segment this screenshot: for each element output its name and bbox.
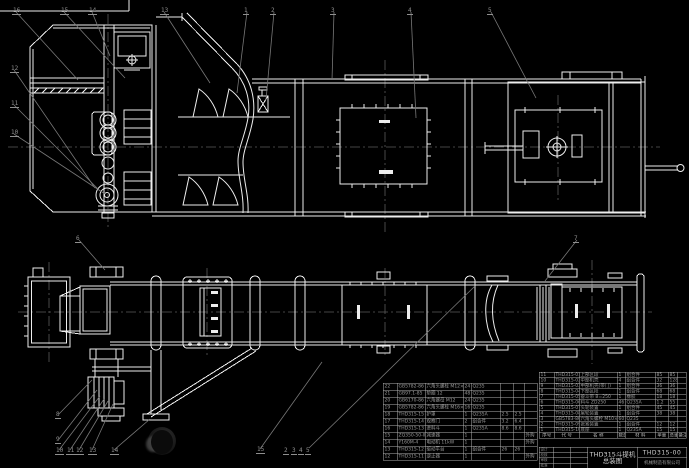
bom-cell: 60 — [617, 416, 625, 422]
bom-cell — [513, 439, 524, 446]
bom-cell: THD315-08 — [554, 411, 579, 417]
bom-cell — [524, 425, 537, 432]
bom-cell: THD315-03 — [554, 383, 579, 389]
bom-cell: 1 — [463, 432, 471, 439]
bom-header-cell: 数量 — [617, 433, 625, 439]
bom-cell: 逆止器 — [425, 453, 463, 460]
bom-cell — [524, 390, 537, 397]
company-name: 机械制造有限公司 — [638, 458, 687, 468]
bom-cell: 垫圈 12 — [425, 390, 463, 397]
callout-balloon: 4 — [407, 8, 413, 15]
callout-balloon: 8 — [55, 412, 61, 419]
callout-balloon: 11 — [66, 448, 75, 455]
bom-cell — [500, 432, 513, 439]
bom-cell: GB5782-86 — [397, 404, 425, 411]
bom-cell: 26 — [500, 446, 513, 453]
bom-cell: Q235 — [471, 383, 500, 390]
callout-balloon: 15 — [60, 8, 69, 15]
drawing-code-cell: THD315-00 机械制造有限公司 — [638, 448, 687, 468]
bom-cell: 组合件 — [471, 446, 500, 453]
revision-cell — [571, 453, 588, 458]
bom-cell: 驱动平台 — [425, 446, 463, 453]
bom-cell: 8.6 — [513, 425, 524, 432]
callout-balloon: 3 — [330, 8, 336, 15]
bom-cell — [500, 390, 513, 397]
bom-header-cell: 材 料 — [625, 433, 655, 439]
bom-cell: Q235 — [471, 404, 500, 411]
bom-cell: GB97.1-85 — [397, 390, 425, 397]
bom-row: 17THD315-14观察门2组合件3.26.4 — [383, 418, 537, 425]
bom-cell: GB6170-86 — [397, 397, 425, 404]
bom-cell — [524, 397, 537, 404]
callout-balloon: 12 — [75, 448, 84, 455]
callout-balloon: 6 — [75, 236, 81, 243]
bom-row: 20GB6170-86六角螺母 M1224Q235 — [383, 397, 537, 404]
bom-row: 22GB5782-86六角头螺栓 M12×4024Q235 — [383, 383, 537, 390]
bom-cell: THD315-15 — [397, 411, 425, 418]
bom-cell: 8.6 — [500, 425, 513, 432]
revision-cell — [554, 463, 571, 468]
bom-row: 13THD315-12驱动平台1组合件2626 — [383, 446, 537, 453]
callout-balloon: 5 — [487, 8, 493, 15]
callout-balloon: 15 — [256, 447, 265, 454]
bom-header-cell: 备注 — [677, 433, 686, 439]
bom-cell: Q235A — [471, 411, 500, 418]
drawing-title-cell: THD315斗提机 总装图 — [588, 448, 639, 468]
bom-header-cell: 名 称 — [579, 433, 617, 439]
bom-cell: 24 — [463, 397, 471, 404]
bom-cell — [500, 383, 513, 390]
revision-cell — [571, 463, 588, 468]
revision-cell — [571, 458, 588, 463]
bom-cell: THD315-13 — [397, 425, 425, 432]
bom-table-left: 22GB5782-86六角头螺栓 M12×4024Q23521GB97.1-85… — [383, 383, 538, 461]
bom-cell: ZQ350-50-Ⅱ — [397, 432, 425, 439]
callout-balloon: 7 — [573, 236, 579, 243]
bom-header-cell: 序号 — [539, 433, 554, 439]
bom-cell: 六角头螺栓 M10×35 — [579, 416, 617, 422]
callout-balloon: 1 — [243, 8, 249, 15]
bom-cell — [513, 404, 524, 411]
title-block: 设计校核审核批准 THD315斗提机 总装图 THD315-00 机械制造有限公… — [539, 447, 687, 468]
bom-cell: 22 — [383, 383, 397, 390]
bom-cell: 2.5 — [513, 411, 524, 418]
callout-balloon: 14 — [88, 8, 97, 15]
bom-cell: 1 — [463, 446, 471, 453]
bom-row: 14Y160M-4电动机 11kW1外购 — [383, 439, 537, 446]
callout-balloon: 2 — [270, 8, 276, 15]
bom-cell: THD315-14 — [397, 418, 425, 425]
bom-cell: 17 — [383, 418, 397, 425]
drawing-code: THD315-00 — [638, 448, 687, 458]
bom-cell: THD315-10 — [554, 427, 579, 433]
bom-cell: 26 — [513, 446, 524, 453]
bom-cell — [513, 397, 524, 404]
revision-cell: 设计 — [540, 448, 554, 453]
callout-balloon: 5 — [305, 448, 311, 455]
bom-cell: 48 — [463, 390, 471, 397]
cad-drawing-canvas: 161514131234512111067891011121314152345 … — [0, 0, 689, 468]
bom-cell — [500, 404, 513, 411]
bom-cell: 19 — [383, 404, 397, 411]
bom-cell: 六角螺母 M12 — [425, 397, 463, 404]
watermark-logo-core — [151, 430, 173, 454]
bom-area: 22GB5782-86六角头螺栓 M12×4024Q23521GB97.1-85… — [383, 372, 686, 468]
bom-cell: Q235 — [471, 390, 500, 397]
bom-cell — [471, 432, 500, 439]
bom-cell: 组合件 — [471, 418, 500, 425]
bom-cell: THD315-11 — [397, 453, 425, 460]
bom-cell: 46 — [617, 400, 625, 406]
bom-row: 21GB97.1-85垫圈 1248Q235 — [383, 390, 537, 397]
bom-cell: 外购 — [524, 453, 537, 460]
side-view-curves — [486, 285, 499, 342]
bom-cell: THD315-06 — [554, 400, 579, 406]
bom-cell: 1 — [463, 453, 471, 460]
bom-cell — [471, 439, 500, 446]
bom-cell — [500, 453, 513, 460]
bom-row: 19GB5782-86六角头螺栓 M16×5516Q235 — [383, 404, 537, 411]
bom-cell: 减速器 — [425, 432, 463, 439]
bom-cell: 六角头螺栓 M12×40 — [425, 383, 463, 390]
bom-cell — [524, 404, 537, 411]
bom-cell: THD315-02 — [554, 378, 579, 384]
revision-cell: 审核 — [540, 458, 554, 463]
callout-balloon: 3 — [291, 448, 297, 455]
bom-cell — [524, 418, 537, 425]
bom-row: 15ZQ350-50-Ⅱ减速器1外购 — [383, 432, 537, 439]
bom-cell: 20 — [383, 397, 397, 404]
bom-cell — [524, 446, 537, 453]
bom-cell: GB5783-86 — [554, 416, 579, 422]
callout-balloon: 10 — [55, 448, 64, 455]
top-view — [30, 13, 678, 218]
bom-cell — [513, 453, 524, 460]
bom-cell — [471, 453, 500, 460]
bom-cell: THD315-05 — [554, 394, 579, 400]
bom-cell: THD315-09 — [554, 422, 579, 428]
bom-cell: 1 — [463, 439, 471, 446]
revision-cell — [554, 448, 571, 453]
bom-header-row: 序号代 号名 称数量材 料单重总重备注 — [539, 433, 686, 439]
bom-header-cell: 代 号 — [554, 433, 579, 439]
bom-row: 12THD315-11逆止器1外购 — [383, 453, 537, 460]
bom-cell: 12 — [383, 453, 397, 460]
bom-cell — [513, 432, 524, 439]
bom-cell: 16 — [463, 404, 471, 411]
bom-cell: 外购 — [524, 432, 537, 439]
revision-row: 批准 — [540, 463, 588, 468]
bom-cell — [500, 439, 513, 446]
bom-cell: THD315-04 — [554, 389, 579, 395]
bom-cell: 1 — [463, 425, 471, 432]
callout-balloon: 13 — [160, 8, 169, 15]
callout-balloon: 4 — [298, 448, 304, 455]
bom-cell: THD315-01 — [554, 372, 579, 378]
bom-cell: 护罩 — [425, 411, 463, 418]
bom-cell: 外购 — [524, 439, 537, 446]
bom-cell — [524, 383, 537, 390]
bom-cell — [524, 411, 537, 418]
revision-grid: 设计校核审核批准 — [540, 448, 589, 468]
callout-balloon: 12 — [10, 66, 19, 73]
bom-cell: 15 — [383, 432, 397, 439]
bom-cell: 13 — [383, 446, 397, 453]
bom-cell — [500, 397, 513, 404]
bom-cell: Q235 — [471, 397, 500, 404]
callout-balloon: 11 — [10, 101, 19, 108]
bom-cell: 128 — [668, 378, 677, 384]
bom-cell: THD315-07 — [554, 405, 579, 411]
bom-cell: THD315-12 — [397, 446, 425, 453]
bom-cell: 16 — [383, 425, 397, 432]
bom-cell: Y160M-4 — [397, 439, 425, 446]
bom-row: 16THD315-13进料斗1Q235A8.68.6 — [383, 425, 537, 432]
bom-cell: 18 — [383, 411, 397, 418]
revision-cell: 批准 — [540, 463, 554, 468]
revision-cell — [571, 448, 588, 453]
bom-cell: 六角头螺栓 M16×55 — [425, 404, 463, 411]
bom-cell: GB5782-86 — [397, 383, 425, 390]
bom-cell: 21 — [383, 390, 397, 397]
bom-cell: 14 — [383, 439, 397, 446]
revision-cell — [554, 458, 571, 463]
bom-cell: 2.5 — [500, 411, 513, 418]
bom-cell: 1 — [463, 411, 471, 418]
bom-table-right: 11THD315-01上部区段1组合件858510THD315-02中部机壳4组… — [539, 372, 687, 439]
callout-balloon: 13 — [88, 448, 97, 455]
bom-header-cell: 单重 — [655, 433, 668, 439]
bom-cell: 观察门 — [425, 418, 463, 425]
bom-header-cell: 总重 — [668, 433, 677, 439]
bom-cell: Q235A — [471, 425, 500, 432]
callout-balloon: 2 — [283, 448, 289, 455]
bom-cell: 24 — [463, 383, 471, 390]
drawing-subtitle: 总装图 — [603, 458, 623, 465]
revision-cell — [554, 453, 571, 458]
callout-balloon: 16 — [12, 8, 21, 15]
bom-cell — [513, 390, 524, 397]
bom-cell: 6.4 — [513, 418, 524, 425]
bom-cell: 3.2 — [500, 418, 513, 425]
bom-cell: 进料斗 — [425, 425, 463, 432]
revision-cell: 校核 — [540, 453, 554, 458]
callout-balloon: 10 — [10, 130, 19, 137]
bom-cell: 2 — [463, 418, 471, 425]
callout-balloon: 9 — [55, 437, 61, 444]
bom-row: 18THD315-15护罩1Q235A2.52.5 — [383, 411, 537, 418]
bom-cell: 电动机 11kW — [425, 439, 463, 446]
bom-cell — [513, 383, 524, 390]
callout-balloon: 14 — [110, 448, 119, 455]
